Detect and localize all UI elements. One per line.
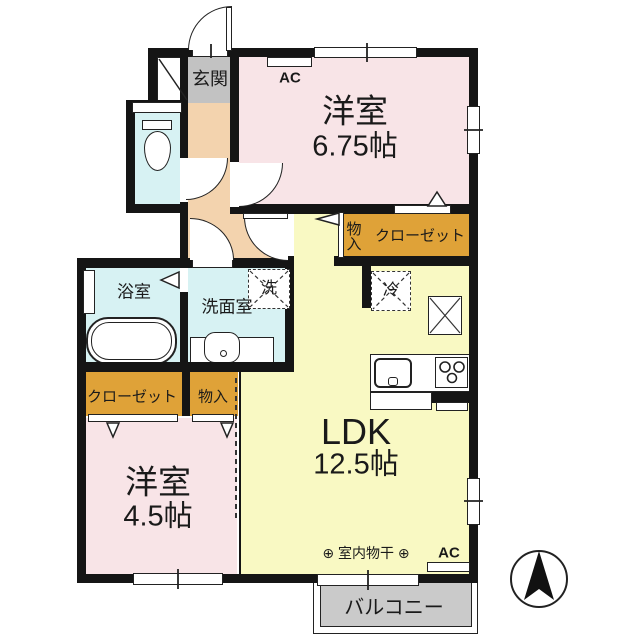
storage-lower-label: 物入 (198, 390, 228, 405)
plan-markers (0, 0, 640, 640)
balcony-label: バルコニー (344, 598, 444, 618)
western-room-1-label: 洋室 (322, 95, 388, 128)
bathroom-label: 浴室 (117, 284, 151, 301)
entrance-label: 玄関 (192, 70, 228, 88)
floorplan: 玄関 AC 洋室 6.75帖 クローゼット 物入 冷 洗 浴室 洗面室 クローゼ… (0, 0, 640, 640)
cupboard-x-mark (430, 298, 460, 333)
washroom-label: 洗面室 (202, 299, 253, 316)
closet-upper-label: クローゼット (375, 229, 465, 244)
ac-lower-label: AC (438, 546, 460, 561)
western-room-2-label: 洋室 (125, 466, 191, 499)
storage-lower-swing-marker (221, 423, 233, 437)
western-room-1-area: 6.75帖 (312, 133, 397, 162)
indoor-drying-label: ⊕ 室内物干 ⊕ (322, 546, 409, 560)
refrigerator-label: 冷 (383, 283, 399, 299)
compass-north-icon (508, 548, 572, 612)
bathroom-door-marker (161, 272, 179, 288)
stove-burners (440, 362, 464, 383)
closet-lower-swing-marker (107, 423, 119, 437)
ldk-area: 12.5帖 (313, 451, 398, 480)
western-room-2-area: 4.5帖 (123, 503, 192, 532)
washer-label: 洗 (261, 281, 277, 297)
closet-upper-swing-marker (428, 192, 446, 206)
ldk-label: LDK (321, 414, 391, 450)
shoe-cabinet-diagonal (159, 59, 187, 100)
storage-upper-label: 物入 (346, 221, 361, 251)
closet-lower-label: クローゼット (87, 390, 177, 405)
ac-upper-label: AC (279, 71, 301, 86)
storage-upper-swing-marker (317, 213, 339, 225)
